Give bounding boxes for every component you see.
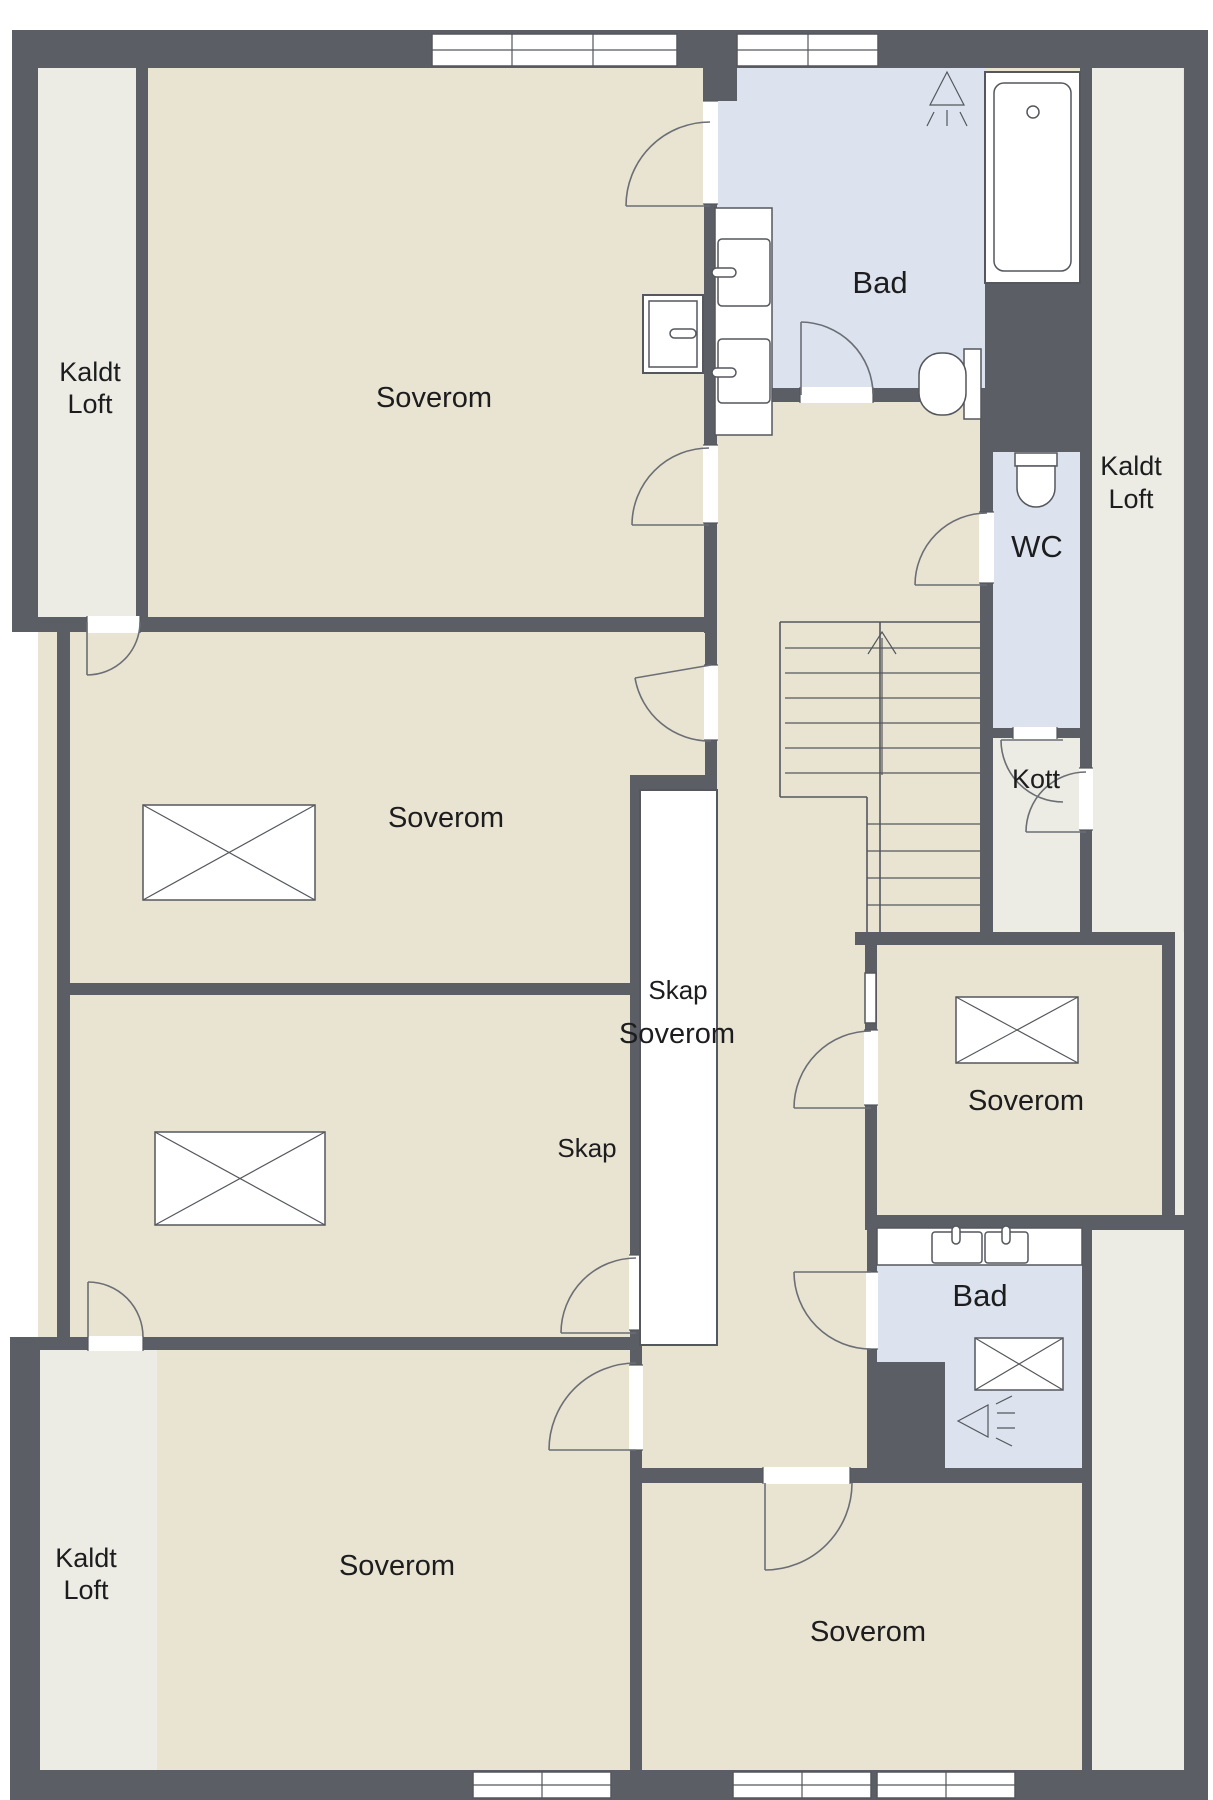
floor-plan: Kaldt Loft Soverom Bad Kaldt Loft WC Kot… [0,0,1213,1800]
shower-tray-icon [975,1338,1063,1390]
wall-stairs-bottom [855,932,1175,945]
toilet-wc-icon [1015,453,1057,507]
wall-v-1082 [1082,1228,1092,1770]
wall-outer-right [1184,30,1208,1800]
roof-window-icon [155,1132,325,1225]
label-kaldt-loft-bottom-2: Loft [63,1575,109,1605]
wall-hall-south [642,1468,1092,1483]
label-bad-top: Bad [852,265,907,300]
wall-block-chimney [867,1362,945,1470]
kaldt-loft-top-left-floor [38,68,136,617]
label-soverom-top-left: Soverom [376,382,492,414]
wall-shaft [985,283,1080,452]
window-bottom-2 [733,1772,871,1798]
floor-plan-page: Kaldt Loft Soverom Bad Kaldt Loft WC Kot… [0,0,1213,1800]
wall-pier-top [703,68,737,101]
label-bad-bottom: Bad [952,1278,1007,1313]
wall-v-704-b [704,523,717,633]
wall-niche [865,973,876,1023]
kaldt-loft-right-sliver [1175,932,1184,1228]
label-kaldt-loft-top-1: Kaldt [59,357,121,387]
skap-closet-box [640,790,717,1345]
vanity-top-icon [712,208,772,435]
window-bottom-1 [473,1772,611,1798]
label-soverom-bottom-right: Soverom [810,1616,926,1648]
kaldt-loft-right-lower-floor [1092,1228,1184,1770]
label-soverom-center: Soverom [619,1018,735,1050]
wall-outer-left-top [12,30,38,628]
wall-msov-right [1162,932,1175,1215]
label-kott: Kott [1012,764,1061,794]
window-top-double [737,34,878,66]
vanity-bottom-icon [877,1226,1082,1265]
label-kaldt-loft-right-1: Kaldt [1100,451,1162,481]
label-skap-1: Skap [648,975,707,1005]
wall-stairs-right [980,402,993,932]
bathtub-icon [985,72,1080,283]
shower-cabinet-icon [643,295,703,373]
label-soverom-middle-right: Soverom [968,1085,1084,1117]
label-soverom-bottom-left: Soverom [339,1550,455,1582]
roof-window-icon [956,997,1078,1063]
wall-h-983 [57,983,642,995]
label-kaldt-loft-bottom-1: Kaldt [55,1543,117,1573]
wall-outer-left-bottom [10,1337,40,1800]
wall-loft-divider-top-left [136,30,148,617]
label-wc: WC [1011,529,1063,564]
window-top-triple [432,34,677,66]
window-bottom-3 [877,1772,1015,1798]
label-kaldt-loft-right-2: Loft [1108,484,1154,514]
label-soverom-middle-left: Soverom [388,802,504,834]
roof-window-icon [143,805,315,900]
wall-skap-top [630,775,717,790]
wall-outer-left-mid [57,617,70,1348]
label-kaldt-loft-top-2: Loft [67,389,113,419]
label-skap-2: Skap [557,1133,616,1163]
wall-v-704-c [705,617,717,665]
toilet-bad-icon [919,349,981,419]
